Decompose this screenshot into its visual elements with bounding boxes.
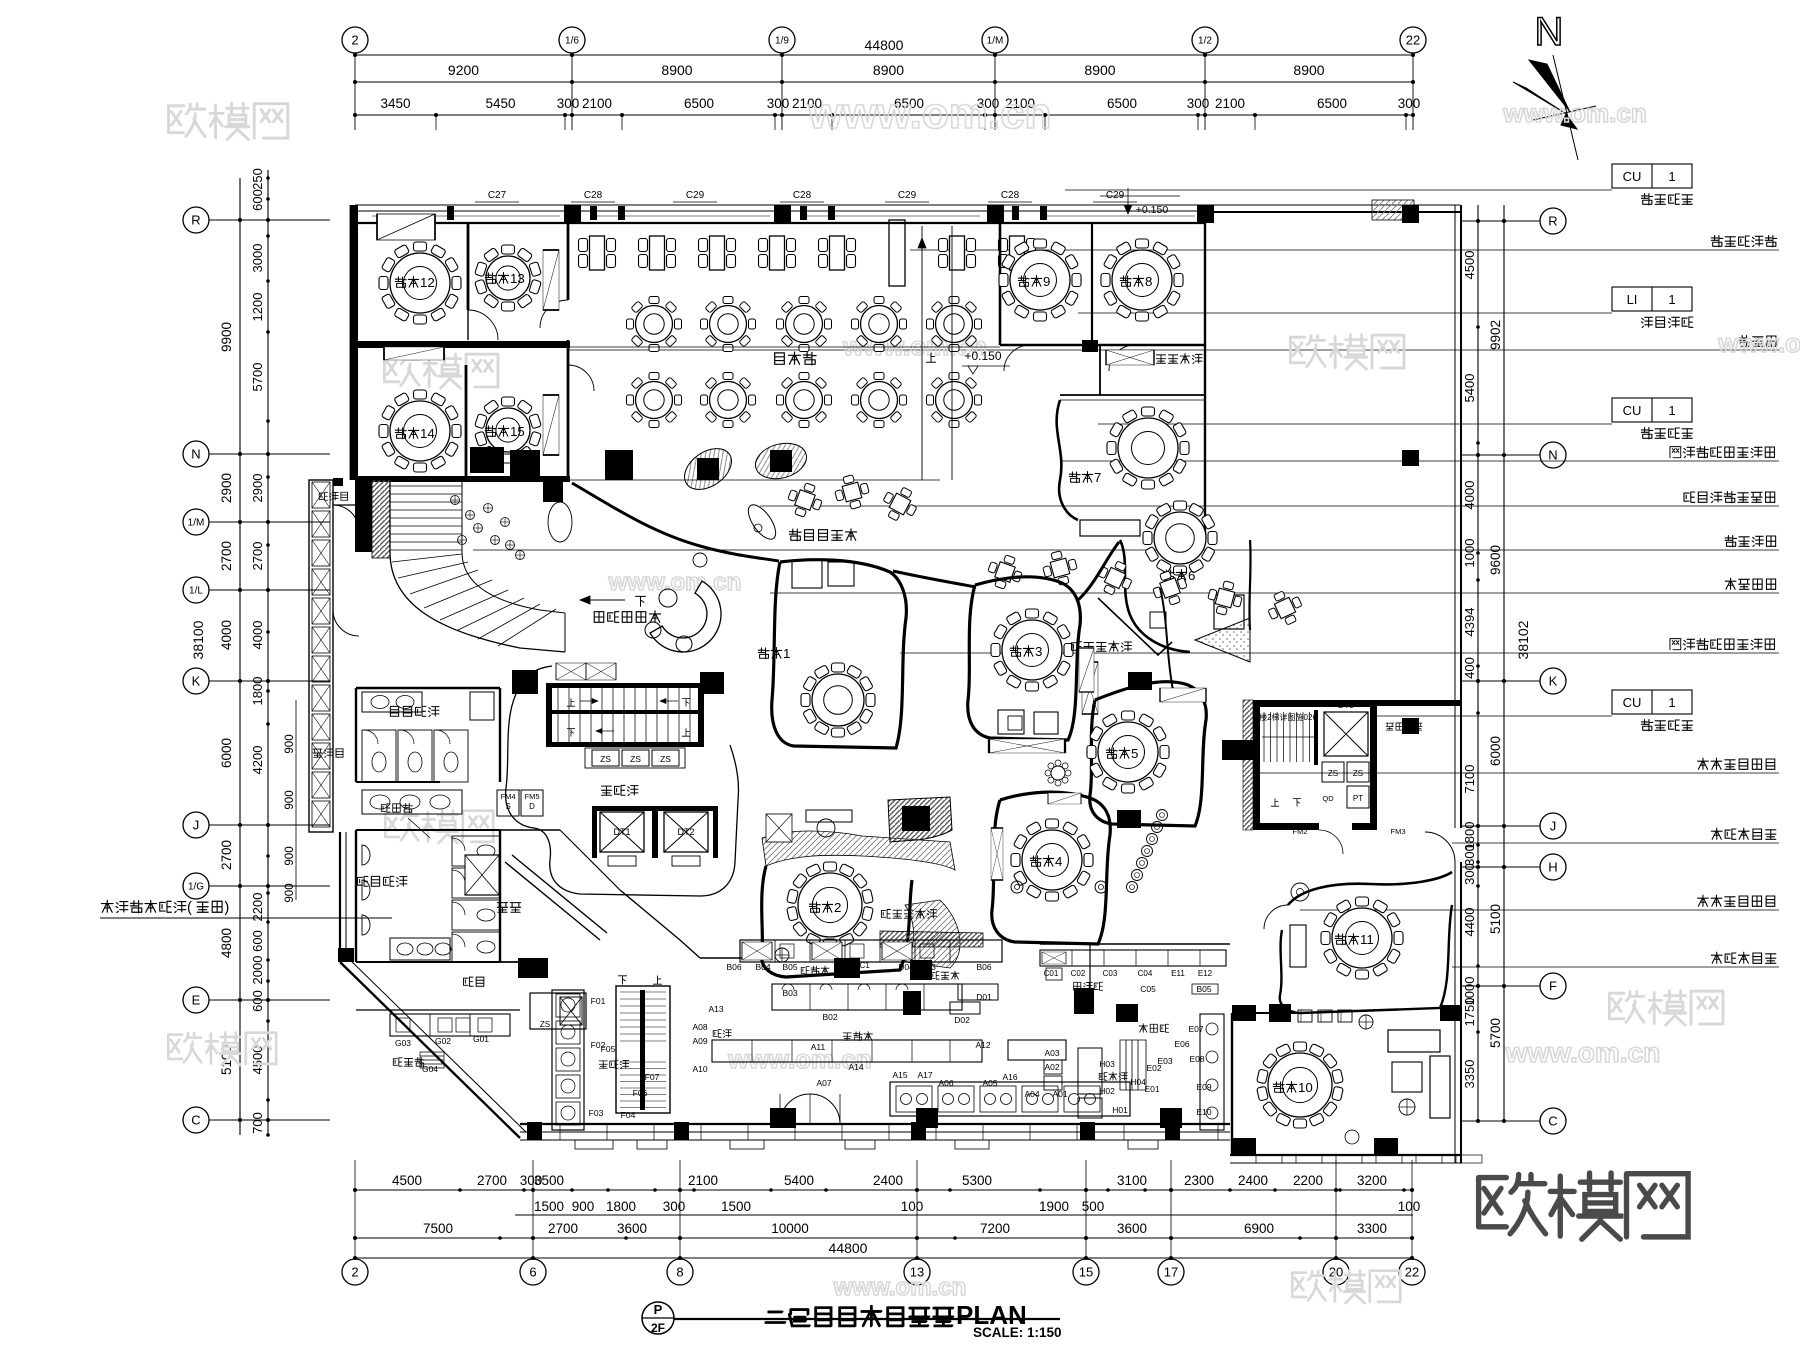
svg-text:F03: F03 [589, 1108, 604, 1118]
svg-text:400: 400 [1462, 657, 1477, 679]
svg-text:E01: E01 [1144, 1084, 1159, 1094]
svg-text:C28: C28 [584, 190, 603, 201]
svg-text:8900: 8900 [1293, 62, 1324, 78]
svg-text:B06: B06 [976, 962, 991, 972]
svg-text:4200: 4200 [250, 746, 265, 775]
svg-text:600: 600 [250, 189, 265, 211]
svg-text:2700: 2700 [548, 1221, 578, 1236]
svg-text:A07: A07 [816, 1078, 831, 1088]
svg-text:15: 15 [510, 424, 525, 439]
svg-text:9600: 9600 [1488, 545, 1503, 575]
svg-text:www.om.cn: www.om.cn [833, 1274, 966, 1301]
svg-text:4500: 4500 [1462, 251, 1477, 280]
svg-text:A14: A14 [848, 1062, 863, 1072]
svg-text:LI: LI [1627, 292, 1638, 307]
svg-text:C01: C01 [1044, 969, 1059, 978]
svg-text:10: 10 [1298, 1080, 1313, 1095]
svg-text:J: J [1550, 819, 1557, 834]
svg-text:2100: 2100 [1215, 96, 1245, 111]
svg-text:): ) [224, 900, 229, 916]
svg-text:C29: C29 [686, 190, 705, 201]
svg-text:G03: G03 [395, 1038, 411, 1048]
svg-text:4000: 4000 [1462, 481, 1477, 510]
svg-text:22: 22 [1406, 33, 1420, 48]
svg-text:C05: C05 [1140, 984, 1156, 994]
svg-text:CU: CU [1623, 695, 1642, 710]
svg-text:E10: E10 [1196, 1107, 1211, 1117]
svg-text:5100: 5100 [1488, 904, 1503, 934]
svg-text:1: 1 [1668, 403, 1675, 418]
svg-text:E02: E02 [1146, 1063, 1161, 1073]
svg-text:8900: 8900 [1084, 62, 1115, 78]
svg-text:A10: A10 [692, 1064, 707, 1074]
svg-text:FM5: FM5 [525, 792, 540, 801]
svg-text:G04: G04 [422, 1064, 438, 1074]
svg-text:3300: 3300 [1357, 1221, 1387, 1236]
svg-text:3: 3 [1035, 644, 1042, 659]
svg-text:1: 1 [1668, 292, 1675, 307]
svg-text:1/M: 1/M [188, 518, 205, 529]
svg-text:8900: 8900 [873, 62, 904, 78]
svg-text:D01: D01 [976, 992, 992, 1002]
svg-text:ZS: ZS [540, 1020, 550, 1029]
svg-text:1000: 1000 [1462, 539, 1477, 568]
svg-text:7: 7 [1094, 470, 1101, 485]
svg-text:300: 300 [1462, 863, 1477, 885]
svg-text:600: 600 [250, 990, 265, 1012]
svg-text:17: 17 [1164, 1265, 1178, 1280]
svg-text:15: 15 [1079, 1265, 1093, 1280]
svg-text:1: 1 [1668, 695, 1675, 710]
svg-text:7100: 7100 [1462, 765, 1477, 794]
svg-text:FM2: FM2 [1293, 827, 1308, 836]
svg-text:2200: 2200 [250, 893, 265, 922]
svg-text:3500: 3500 [534, 1173, 564, 1188]
svg-text:6: 6 [529, 1265, 536, 1280]
svg-text:A13: A13 [708, 1004, 723, 1014]
svg-text:3100: 3100 [1117, 1173, 1147, 1188]
svg-text:6500: 6500 [1317, 96, 1347, 111]
svg-text:5450: 5450 [485, 96, 515, 111]
svg-text:A16: A16 [1002, 1072, 1017, 1082]
svg-text:8: 8 [676, 1265, 683, 1280]
svg-text:5: 5 [1131, 746, 1138, 761]
svg-text:B02: B02 [822, 1012, 837, 1022]
svg-text:3350: 3350 [1462, 1060, 1477, 1089]
svg-text:3000: 3000 [250, 244, 265, 273]
svg-text:F04: F04 [621, 1110, 636, 1120]
svg-text:D02: D02 [954, 1015, 970, 1025]
svg-text:DT2: DT2 [677, 827, 694, 837]
svg-text:6500: 6500 [684, 96, 714, 111]
svg-text:C04: C04 [1138, 969, 1153, 978]
svg-text:1: 1 [783, 646, 790, 661]
svg-text:300: 300 [1187, 96, 1210, 111]
svg-text:1/G: 1/G [188, 882, 204, 893]
svg-text:C03: C03 [1103, 969, 1118, 978]
svg-text:3600: 3600 [1117, 1221, 1147, 1236]
svg-text:+0.150: +0.150 [964, 349, 1001, 363]
svg-text:DT1: DT1 [613, 827, 630, 837]
svg-text:900: 900 [572, 1199, 595, 1214]
svg-text:H: H [1548, 860, 1557, 875]
svg-text:S: S [505, 802, 510, 811]
svg-text:A06: A06 [938, 1078, 953, 1088]
svg-text:2700: 2700 [250, 542, 265, 571]
svg-text:ZS: ZS [1328, 769, 1338, 778]
svg-text:C28: C28 [1001, 190, 1020, 201]
svg-text:2200: 2200 [1293, 1173, 1323, 1188]
svg-text:A11: A11 [811, 1042, 826, 1052]
svg-text:C: C [1548, 1114, 1557, 1129]
svg-text:4394: 4394 [1462, 608, 1477, 637]
svg-text:2300: 2300 [1184, 1173, 1214, 1188]
svg-text:SCALE: 1:150: SCALE: 1:150 [973, 1325, 1062, 1340]
svg-text:4400: 4400 [1462, 908, 1477, 937]
svg-text:A01: A01 [1052, 1089, 1067, 1099]
svg-text:9902: 9902 [1488, 320, 1503, 350]
svg-text:A02: A02 [1044, 1062, 1059, 1072]
svg-text:B06: B06 [726, 962, 741, 972]
svg-text:8900: 8900 [661, 62, 692, 78]
svg-text:PT: PT [1353, 794, 1363, 803]
svg-text:B05: B05 [782, 962, 797, 972]
svg-text:G01: G01 [473, 1034, 489, 1044]
svg-text:N: N [1535, 10, 1564, 54]
svg-text:1200: 1200 [250, 293, 265, 322]
svg-text:C: C [191, 1113, 200, 1128]
svg-text:ZS: ZS [1353, 769, 1363, 778]
svg-text:ZS: ZS [630, 754, 641, 764]
svg-text:FM3: FM3 [1391, 827, 1406, 836]
svg-text:5400: 5400 [784, 1173, 814, 1188]
svg-text:1800: 1800 [606, 1199, 636, 1214]
svg-text:2700: 2700 [219, 840, 234, 870]
svg-text:CU: CU [1623, 169, 1642, 184]
svg-text:R: R [191, 213, 200, 228]
svg-text:E11: E11 [1171, 969, 1185, 978]
svg-text:4500: 4500 [392, 1173, 422, 1188]
svg-text:CU: CU [1623, 403, 1642, 418]
svg-text:900: 900 [284, 790, 296, 809]
svg-text:1/M: 1/M [987, 36, 1004, 47]
svg-text:B05: B05 [1196, 984, 1211, 994]
svg-text:2F: 2F [651, 1321, 665, 1335]
svg-text:14: 14 [420, 426, 435, 441]
svg-text:A17: A17 [917, 1070, 932, 1080]
svg-text:C28: C28 [793, 190, 812, 201]
svg-text:6000: 6000 [1488, 736, 1503, 766]
svg-text:100: 100 [901, 1199, 924, 1214]
svg-text:2700: 2700 [219, 541, 234, 571]
svg-text:E07: E07 [1188, 1024, 1203, 1034]
svg-text:600: 600 [250, 930, 265, 952]
svg-text:B04: B04 [755, 962, 770, 972]
svg-text:6: 6 [1188, 568, 1195, 583]
svg-text:1500: 1500 [534, 1199, 564, 1214]
svg-text:C27: C27 [488, 190, 507, 201]
svg-text:5400: 5400 [1462, 374, 1477, 403]
svg-text:900: 900 [284, 883, 296, 902]
svg-text:ZS: ZS [600, 754, 611, 764]
svg-text:38100: 38100 [190, 620, 206, 659]
svg-text:13: 13 [510, 271, 525, 286]
svg-text:300: 300 [663, 1199, 686, 1214]
svg-text:4800: 4800 [219, 928, 234, 958]
svg-text:2700: 2700 [477, 1173, 507, 1188]
svg-text:100: 100 [1398, 1199, 1421, 1214]
svg-text:6900: 6900 [1244, 1221, 1274, 1236]
svg-text:E06: E06 [1174, 1039, 1189, 1049]
svg-text:4: 4 [1055, 854, 1062, 869]
svg-text:1/2: 1/2 [1198, 36, 1212, 47]
svg-text:250: 250 [250, 168, 265, 190]
svg-text:A04: A04 [1024, 1089, 1039, 1099]
svg-text:3600: 3600 [617, 1221, 647, 1236]
svg-text:1: 1 [1668, 169, 1675, 184]
svg-text:3200: 3200 [1357, 1173, 1387, 1188]
svg-text:300: 300 [1462, 844, 1477, 866]
svg-text:R: R [1548, 214, 1557, 229]
svg-text:7200: 7200 [980, 1221, 1010, 1236]
svg-text:12: 12 [420, 275, 435, 290]
svg-text:9200: 9200 [448, 62, 479, 78]
svg-text:2: 2 [834, 900, 841, 915]
svg-text:www.om.cn: www.om.cn [1505, 1037, 1661, 1068]
svg-text:10000: 10000 [771, 1221, 809, 1236]
svg-text:5700: 5700 [1488, 1018, 1503, 1048]
svg-text:A03: A03 [1044, 1048, 1059, 1058]
svg-text:N: N [191, 447, 200, 462]
svg-text:300: 300 [1398, 96, 1421, 111]
svg-text:4000: 4000 [219, 620, 234, 650]
svg-text:G02: G02 [435, 1036, 451, 1046]
svg-text:9900: 9900 [219, 322, 234, 352]
svg-text:C02: C02 [1071, 969, 1086, 978]
svg-text:44800: 44800 [865, 37, 904, 53]
svg-text:900: 900 [284, 846, 296, 865]
svg-text:1/6: 1/6 [565, 36, 579, 47]
svg-text:11: 11 [1360, 932, 1374, 947]
svg-text:4000: 4000 [250, 621, 265, 650]
svg-text:2: 2 [351, 1265, 358, 1280]
svg-text:2900: 2900 [250, 474, 265, 503]
svg-text:A12: A12 [975, 1040, 990, 1050]
svg-text:5700: 5700 [250, 363, 265, 392]
svg-text:QD: QD [1322, 794, 1334, 803]
svg-text:N: N [1548, 448, 1557, 463]
svg-text:500: 500 [1082, 1199, 1105, 1214]
svg-text:FM4: FM4 [501, 792, 516, 801]
svg-text:9: 9 [1043, 274, 1050, 289]
svg-text:E08: E08 [1189, 1054, 1204, 1064]
svg-text:900: 900 [284, 734, 296, 753]
svg-text:J: J [193, 818, 200, 833]
svg-text:ZS: ZS [660, 754, 671, 764]
svg-text:D: D [529, 802, 535, 811]
svg-text:楼2梯详图施026: 楼2梯详图施026 [1259, 712, 1317, 722]
svg-text:38102: 38102 [1515, 620, 1531, 659]
svg-text:A09: A09 [692, 1036, 707, 1046]
svg-text:E: E [192, 993, 201, 1008]
svg-text:300: 300 [767, 96, 790, 111]
svg-text:www.om.cn: www.om.cn [1717, 328, 1800, 358]
svg-text:(: ( [187, 900, 192, 916]
svg-text:www.om.cn: www.om.cn [808, 89, 1052, 138]
svg-text:1500: 1500 [721, 1199, 751, 1214]
svg-text:A08: A08 [692, 1022, 707, 1032]
svg-text:2400: 2400 [1238, 1173, 1268, 1188]
svg-text:F: F [1549, 979, 1557, 994]
svg-text:3450: 3450 [380, 96, 410, 111]
svg-text:700: 700 [250, 1112, 265, 1134]
svg-text:H01: H01 [1112, 1105, 1128, 1115]
svg-text:7500: 7500 [423, 1221, 453, 1236]
svg-text:B03: B03 [782, 988, 797, 998]
svg-text:1/9: 1/9 [775, 36, 789, 47]
svg-text:8: 8 [1145, 274, 1152, 289]
svg-text:22: 22 [1405, 1265, 1419, 1280]
svg-text:C29: C29 [1106, 190, 1125, 201]
svg-text:F05: F05 [601, 1044, 616, 1054]
svg-text:K: K [1549, 674, 1558, 689]
svg-text:2: 2 [351, 33, 358, 48]
svg-text:2100: 2100 [688, 1173, 718, 1188]
svg-text:2100: 2100 [582, 96, 612, 111]
svg-text:+0.150: +0.150 [1136, 204, 1169, 216]
svg-text:300: 300 [557, 96, 580, 111]
svg-text:44800: 44800 [829, 1240, 868, 1256]
svg-text:2900: 2900 [219, 473, 234, 503]
svg-text:6000: 6000 [219, 738, 234, 768]
svg-text:K: K [192, 674, 201, 689]
svg-text:2000: 2000 [250, 956, 265, 985]
svg-text:5300: 5300 [962, 1173, 992, 1188]
svg-text:1900: 1900 [1039, 1199, 1069, 1214]
svg-text:A15: A15 [892, 1070, 907, 1080]
svg-text:1/L: 1/L [189, 586, 203, 597]
svg-text:www.om.cn: www.om.cn [1502, 98, 1647, 128]
svg-text:1750: 1750 [1462, 998, 1477, 1027]
svg-text:DT3: DT3 [1338, 700, 1354, 710]
svg-text:F01: F01 [591, 996, 606, 1006]
svg-text:E12: E12 [1198, 969, 1213, 978]
svg-text:C29: C29 [898, 190, 917, 201]
svg-text:P: P [654, 1302, 663, 1317]
svg-text:A05: A05 [982, 1078, 997, 1088]
svg-text:F07: F07 [645, 1072, 660, 1082]
svg-text:6500: 6500 [1107, 96, 1137, 111]
svg-text:2400: 2400 [873, 1173, 903, 1188]
svg-text:1800: 1800 [250, 677, 265, 706]
